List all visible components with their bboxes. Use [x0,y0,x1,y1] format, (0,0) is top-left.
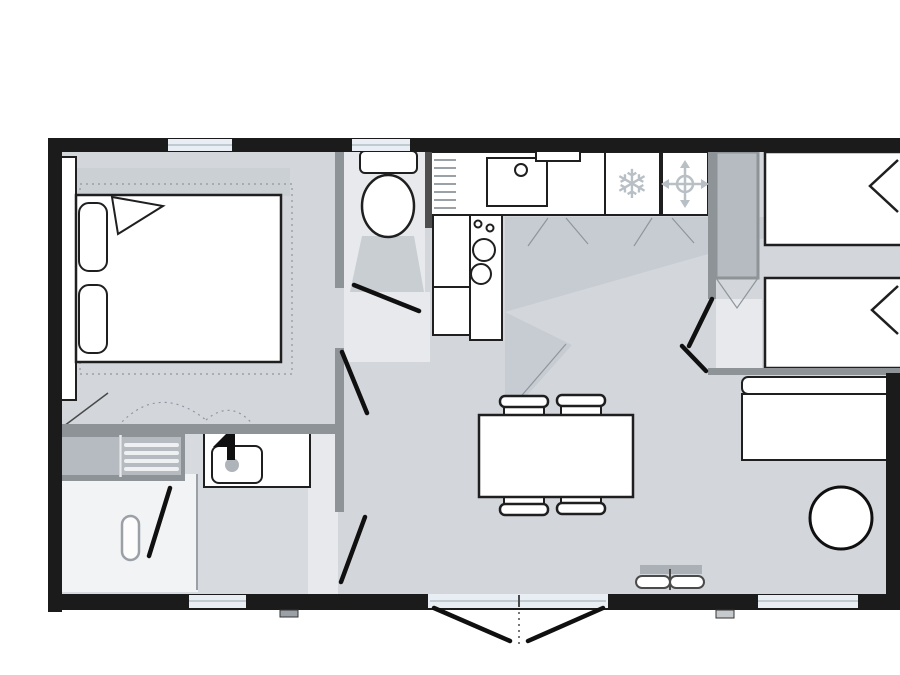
basin-drain [225,458,239,472]
cooktop-column [470,215,502,340]
single-bed [765,152,900,245]
window [168,139,232,151]
bedrooms-divider-wall [708,368,900,375]
headboard [60,157,76,400]
heater-bar [636,576,670,588]
french-door-leaf [528,608,603,641]
wc-kitchen-wall [425,152,432,228]
right-wall [886,373,900,610]
vestibule-floor [344,292,430,362]
shower-handle [122,516,139,560]
storage-cabinet [59,437,119,475]
bench-backrest [742,377,894,394]
chair [500,496,548,515]
pillow [79,285,107,353]
heater-bar [670,576,704,588]
base-cabinet [433,215,470,287]
window [758,595,858,608]
wardrobe [716,152,758,278]
bench-seat [742,394,894,460]
hallway-floor [308,434,338,594]
bedroom-wc-wall [335,152,344,288]
dining-table [479,415,633,497]
window [352,139,410,151]
floorplan-drawing: ❄ [0,0,900,675]
pillow [79,203,107,271]
bathroom-wall [60,424,343,434]
bedroom-shadow [76,168,290,196]
floorplan-page: ❄ [0,0,900,675]
chair [557,395,605,415]
left-wall [48,138,62,612]
french-doors [428,594,608,646]
french-door-leaf [434,608,510,641]
wall-heater [636,565,704,590]
toilet-cistern [360,151,417,173]
twin-corridor-floor [716,299,762,368]
exterior-step [716,610,734,618]
single-bed [765,278,900,368]
toilet-shadow [350,236,424,292]
kitchen-bedroom-wall [708,152,716,299]
drainer-hatch [434,160,456,208]
snowflake-icon: ❄ [615,162,649,208]
window [189,595,246,608]
round-table [810,487,872,549]
base-cabinet [433,287,470,335]
exterior-step [280,610,298,617]
chair [500,396,548,416]
toilet-bowl [362,175,414,237]
